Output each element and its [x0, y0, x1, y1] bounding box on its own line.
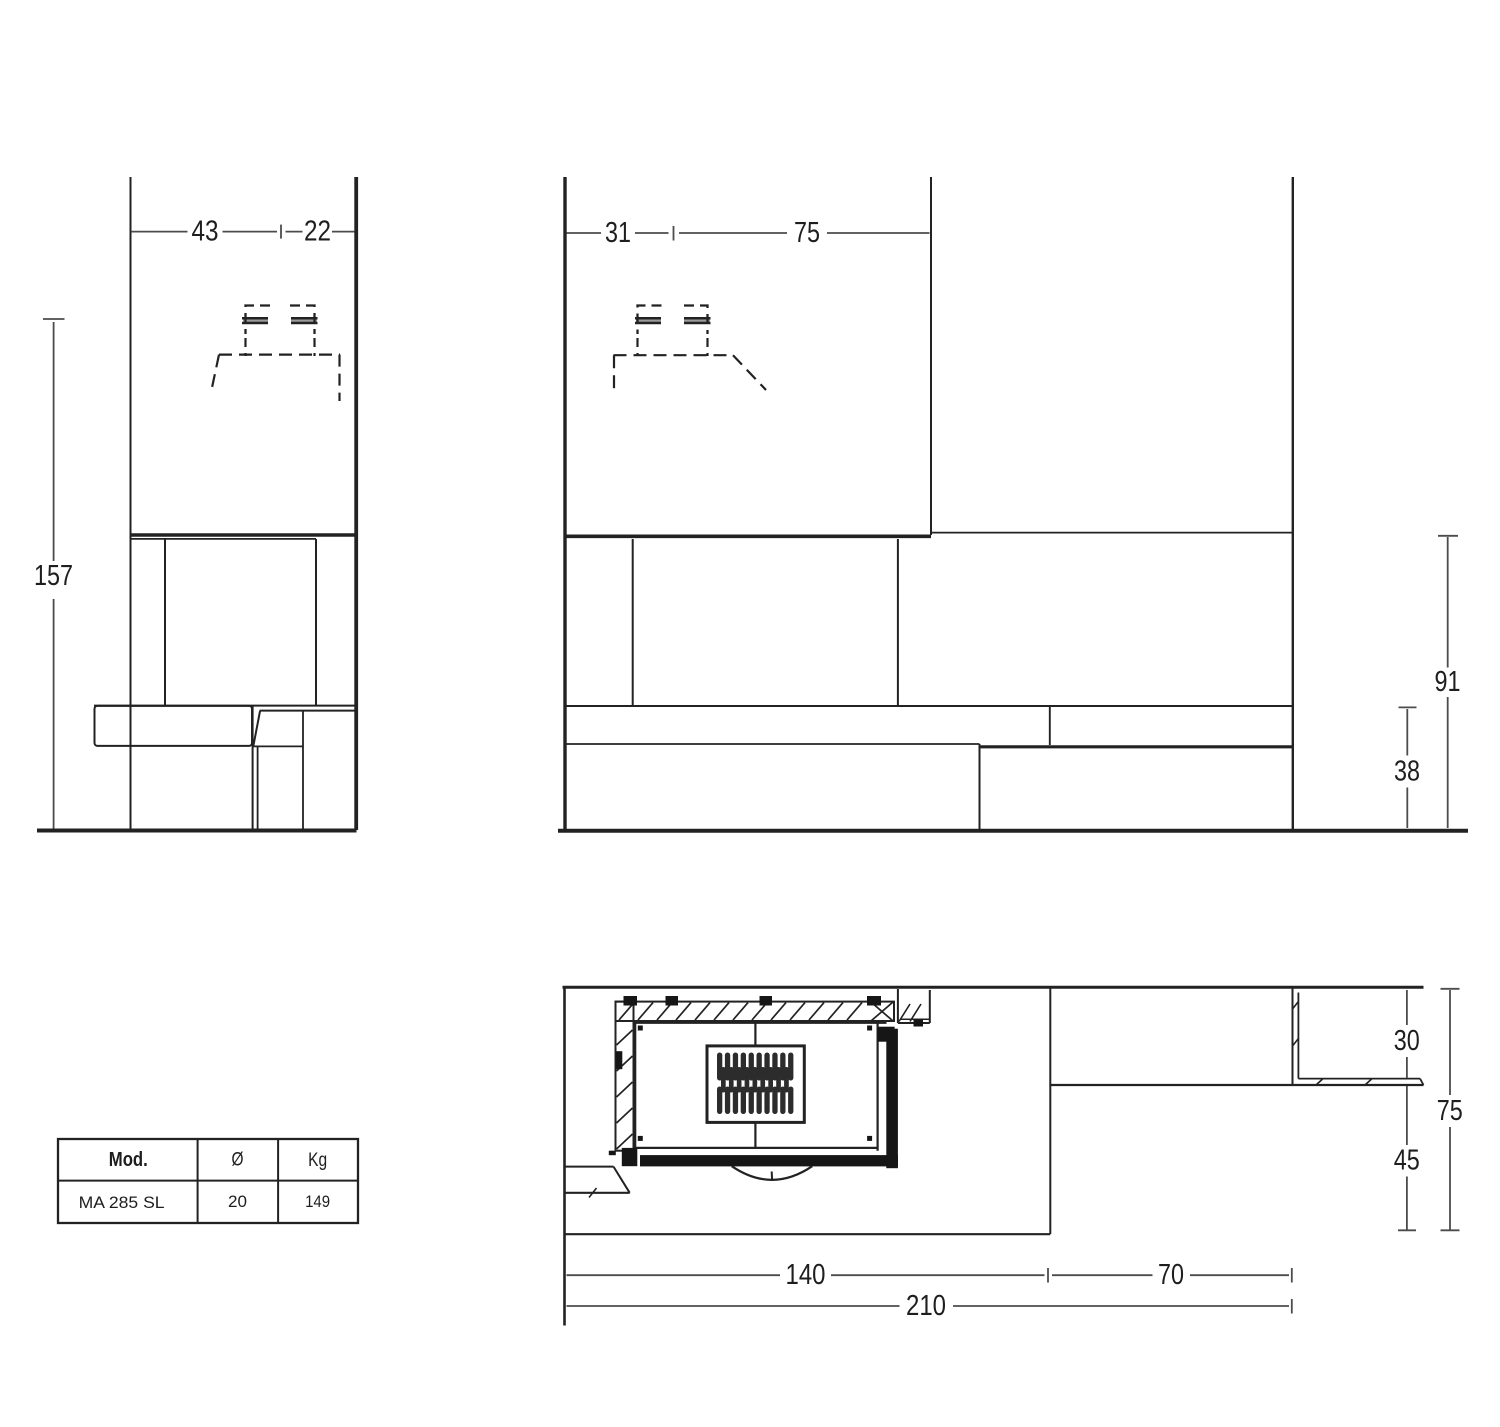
svg-text:91: 91 [1435, 666, 1461, 698]
svg-text:43: 43 [192, 216, 219, 248]
svg-text:75: 75 [794, 217, 820, 249]
svg-text:30: 30 [1394, 1025, 1420, 1057]
svg-text:157: 157 [34, 560, 73, 592]
svg-text:45: 45 [1394, 1145, 1420, 1177]
svg-text:70: 70 [1158, 1259, 1184, 1291]
svg-text:140: 140 [786, 1259, 826, 1291]
svg-text:20: 20 [228, 1193, 247, 1211]
svg-text:31: 31 [605, 217, 631, 249]
svg-text:MA 285 SL: MA 285 SL [79, 1193, 165, 1212]
svg-text:75: 75 [1437, 1095, 1463, 1127]
svg-text:149: 149 [305, 1193, 330, 1211]
svg-text:Ø: Ø [232, 1148, 244, 1170]
svg-text:210: 210 [906, 1290, 946, 1322]
svg-text:38: 38 [1394, 756, 1420, 788]
svg-text:22: 22 [304, 216, 331, 248]
svg-text:Mod.: Mod. [109, 1149, 148, 1171]
svg-text:Kg: Kg [308, 1149, 327, 1171]
